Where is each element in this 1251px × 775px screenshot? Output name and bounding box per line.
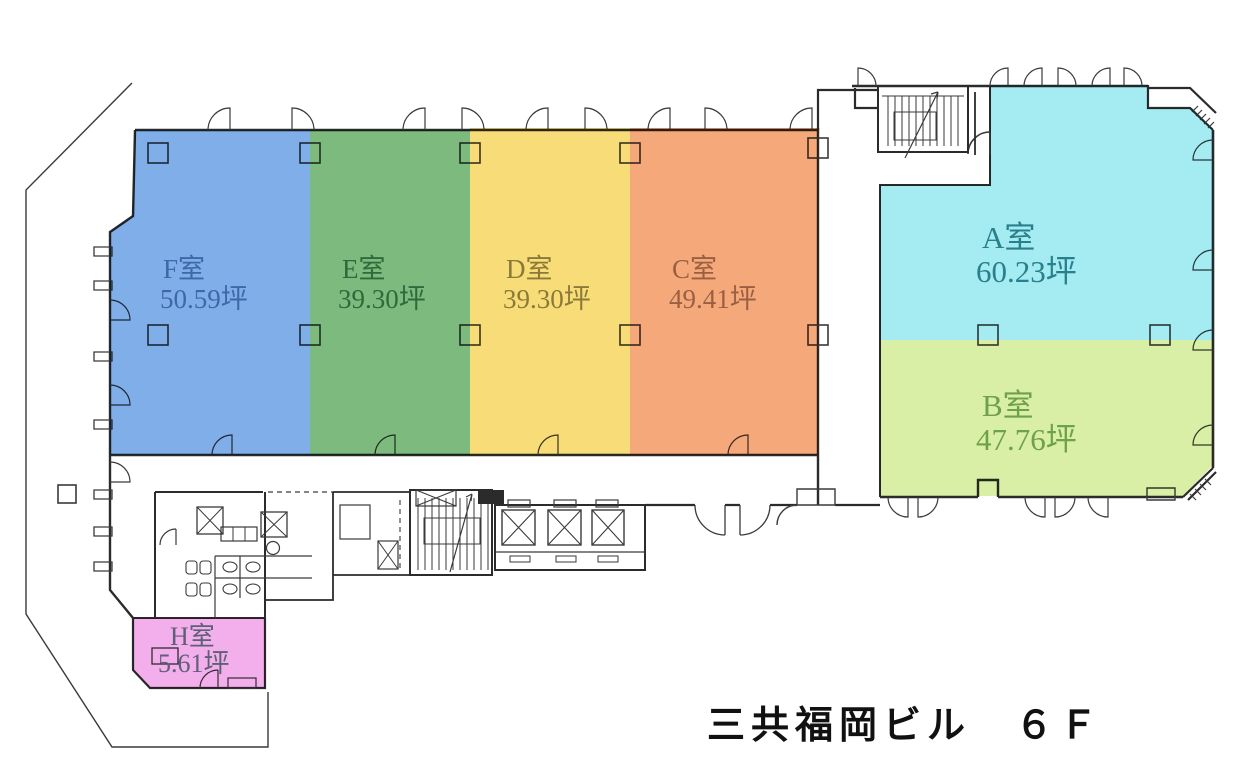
restroom-door-arc (160, 529, 176, 545)
window-arcs-top-right (858, 68, 1142, 86)
elevator-bank-icon (495, 500, 645, 570)
toilet-stalls-icon (215, 556, 312, 618)
room-area-b (880, 340, 1213, 496)
room-d-area: 39.30坪 (503, 284, 591, 314)
page-title: 三共福岡ビル ６Ｆ (707, 705, 1103, 747)
pipe-shaft-icon (378, 541, 398, 569)
floor-plan-drawing: F室 50.59坪 E室 39.30坪 D室 39.30坪 C室 49.41坪 … (0, 0, 1251, 775)
room-d-name: D室 (506, 254, 553, 284)
staircase-northeast-icon (878, 86, 968, 158)
staircase-central-icon (378, 490, 504, 575)
room-b-name: B室 (982, 388, 1034, 423)
water-heater-icon (267, 542, 280, 555)
room-h-area: 5.61坪 (158, 649, 230, 678)
room-a-name: A室 (982, 220, 1035, 255)
service-room-block (265, 492, 410, 600)
corridor-wall-and-doors (645, 489, 880, 535)
room-c-name: C室 (672, 254, 717, 284)
a-entry-door (968, 132, 990, 155)
urinals-icon (186, 561, 211, 596)
sink-counter-icon (221, 527, 257, 541)
room-areas (110, 85, 1213, 688)
window-arcs-top (208, 108, 812, 130)
room-a-area: 60.23坪 (976, 254, 1077, 289)
window-arcs-south (888, 497, 1108, 517)
pipe-shaft-icon (197, 507, 223, 534)
room-c-area: 49.41坪 (669, 284, 757, 314)
room-f-name: F室 (163, 254, 205, 284)
room-e-area: 39.30坪 (338, 284, 426, 314)
room-b-area: 47.76坪 (976, 422, 1077, 457)
room-f-area: 50.59坪 (160, 284, 248, 314)
upper-jog-wall (818, 88, 878, 130)
stairhall-wall (878, 92, 975, 155)
room-e-name: E室 (342, 254, 386, 284)
floor-plan-page: F室 50.59坪 E室 39.30坪 D室 39.30坪 C室 49.41坪 … (0, 0, 1251, 775)
room-h-name: H室 (170, 622, 215, 651)
